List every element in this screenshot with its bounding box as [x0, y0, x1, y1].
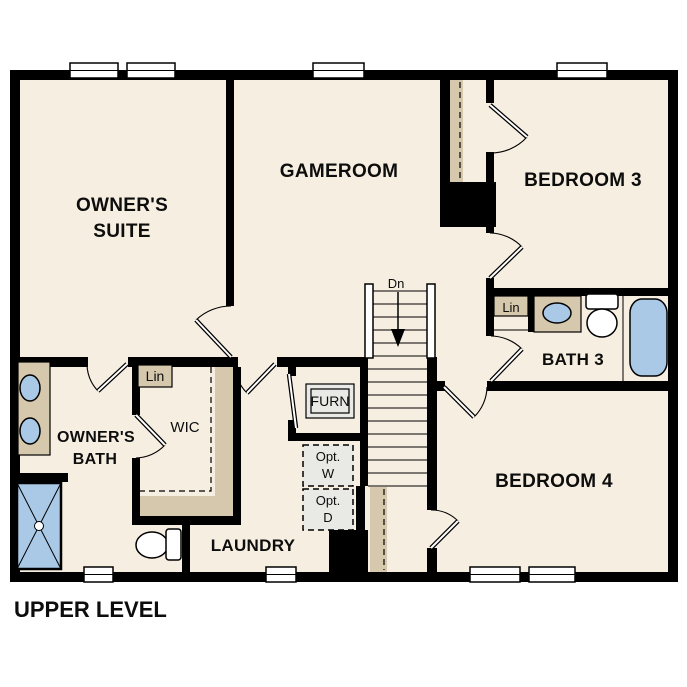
opt-washer-line2: W [322, 466, 335, 481]
wall-segment [288, 433, 365, 441]
wall-segment [360, 357, 368, 486]
opt-dryer-line2: D [323, 510, 332, 525]
owners-bath-label-line1: OWNER'S [57, 429, 135, 446]
stair-rail-left [365, 284, 373, 358]
linen-closet-wic: Lin [138, 365, 172, 387]
owners-bath-label-line2: BATH [73, 451, 117, 468]
gameroom-label: GAMEROOM [280, 161, 399, 182]
toilet-icon [136, 529, 181, 560]
linen-wic-label: Lin [146, 368, 165, 384]
toilet-icon [586, 294, 618, 337]
owners-suite-label-line1: OWNER'S [76, 195, 168, 216]
window [266, 567, 296, 582]
window [313, 63, 364, 78]
wall-segment [233, 367, 241, 525]
linen-bath3-label: Lin [502, 300, 519, 315]
wall-segment [486, 152, 494, 182]
shower [17, 483, 61, 569]
wall-segment [226, 70, 234, 306]
sink-icon [20, 418, 40, 444]
sink-icon [20, 375, 40, 401]
wall-segment [12, 473, 68, 482]
wic-label: WIC [170, 419, 199, 436]
window [529, 567, 575, 582]
laundry-wall-block [329, 530, 368, 572]
wall-segment [668, 70, 678, 582]
floor-plan-page: Dn [0, 0, 687, 687]
owners-suite-label-line2: SUITE [93, 221, 150, 242]
wall-segment [486, 288, 668, 296]
laundry-label: LAUNDRY [211, 536, 296, 555]
furnace-label: FURN [311, 393, 350, 409]
wall-segment [132, 516, 241, 525]
plan-title: UPPER LEVEL [14, 597, 167, 622]
wall-segment [433, 381, 445, 391]
wall-segment [277, 357, 365, 367]
sink-icon [543, 303, 571, 323]
wic-shelf-right [215, 367, 233, 516]
bedroom4-label: BEDROOM 4 [495, 471, 613, 492]
structural-block [440, 182, 496, 227]
bedroom3-label: BEDROOM 3 [524, 170, 642, 191]
optional-washer: Opt. W [303, 445, 353, 486]
wic-shelf-bottom [140, 496, 233, 516]
bathtub [630, 299, 667, 376]
floor-plan-drawing: Dn [0, 0, 687, 687]
bath3-label: BATH 3 [542, 350, 604, 369]
stair-rail-right [427, 284, 435, 358]
window [470, 567, 520, 582]
wall-segment [487, 381, 668, 391]
wall-segment [486, 80, 494, 103]
optional-dryer: Opt. D [303, 489, 353, 530]
wall-segment [182, 525, 190, 572]
opt-washer-line1: Opt. [316, 449, 341, 464]
wall-segment [528, 296, 534, 332]
opt-dryer-line1: Opt. [316, 493, 341, 508]
furnace: FURN [306, 384, 354, 418]
stairs-down-label: Dn [388, 276, 405, 291]
wall-segment [427, 548, 437, 572]
wall-segment [427, 357, 437, 510]
wall-segment [132, 458, 140, 516]
window [70, 63, 118, 78]
window [557, 63, 607, 78]
wall-segment [486, 223, 494, 233]
stair-chase [450, 80, 463, 182]
wall-segment [440, 80, 450, 182]
window [127, 63, 175, 78]
window [84, 567, 113, 582]
wall-segment [486, 296, 494, 336]
